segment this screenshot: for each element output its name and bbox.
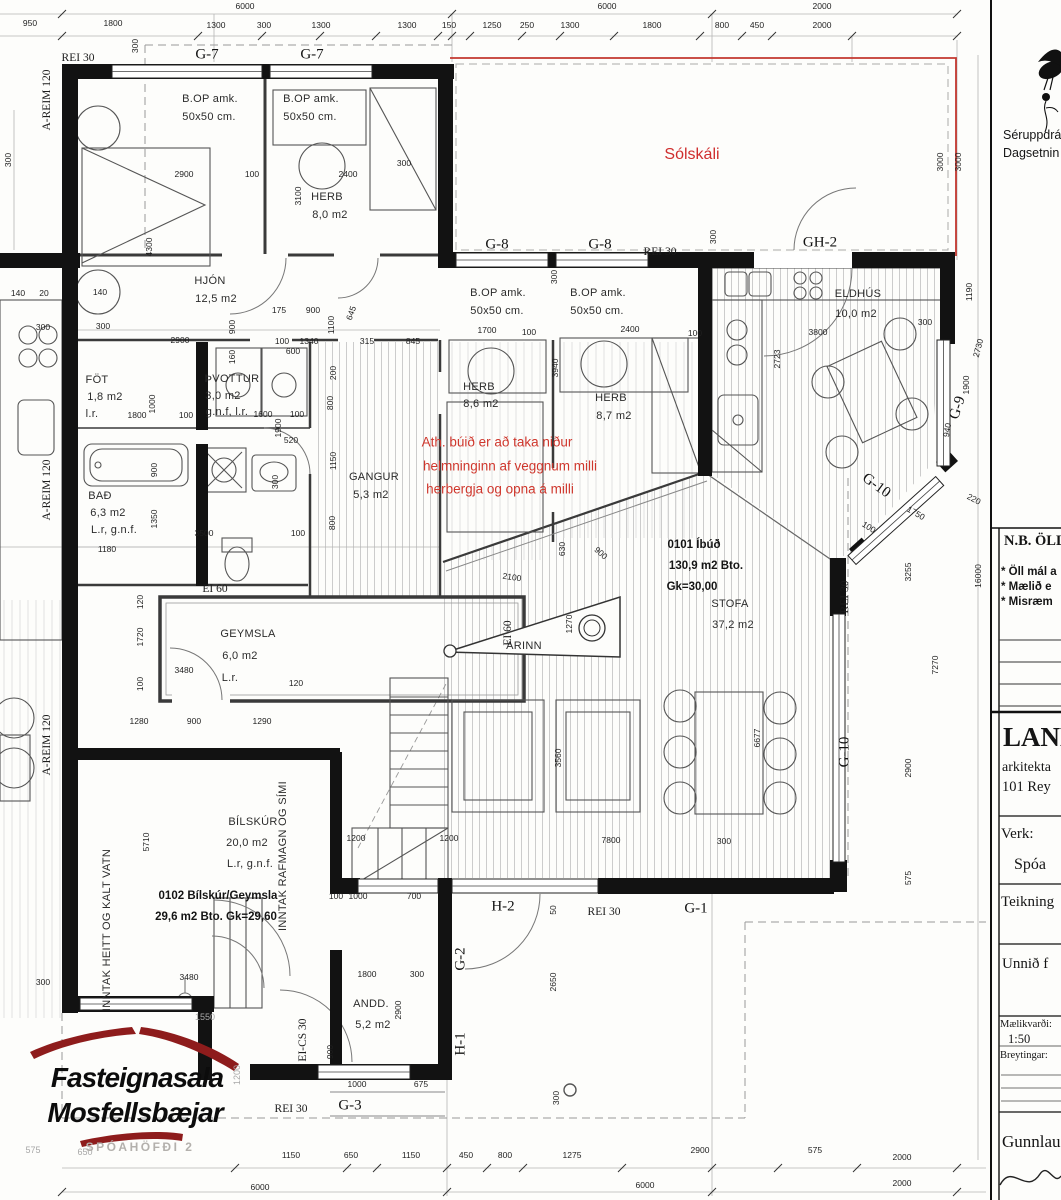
room-label: B.OP amk. xyxy=(182,93,238,105)
dim-label: 6677 xyxy=(752,729,762,748)
dim-label: 1275 xyxy=(563,1150,582,1160)
dim-label: 800 xyxy=(327,516,337,530)
dim-label: 1800 xyxy=(358,969,377,979)
room-label: 5,3 m2 xyxy=(353,489,388,501)
dim-label: 220 xyxy=(965,491,982,506)
annotation-label: herbergja og opna á milli xyxy=(426,482,574,497)
dim-label: 6000 xyxy=(236,1,255,11)
room-label: ÞVOTTUR xyxy=(205,373,260,385)
dim-label: 1000 xyxy=(349,891,368,901)
dim-label: 2000 xyxy=(813,20,832,30)
room-label: HERB xyxy=(463,381,495,393)
grid-tag-label: A-REIM 120 xyxy=(41,69,53,130)
dim-label: 300 xyxy=(36,322,50,332)
dim-label: 1190 xyxy=(964,283,974,301)
grid-tag-label: G-8 xyxy=(588,237,611,254)
room-label: L.r. xyxy=(222,672,239,684)
dim-label: 1300 xyxy=(561,20,580,30)
realtor-logo-address: SPÓAHÖFÐI 2 xyxy=(86,1140,195,1154)
dim-label: 900 xyxy=(187,716,201,726)
dim-label: 1270 xyxy=(564,615,574,634)
grid-tag-label: A-REIM 120 xyxy=(41,459,53,520)
dim-label: 1800 xyxy=(104,18,123,28)
dim-label: 3800 xyxy=(809,327,828,337)
dim-label: 1900 xyxy=(961,376,971,395)
dim-label: 16000 xyxy=(973,564,983,588)
room-label: 3,0 m2 xyxy=(205,390,240,402)
dim-label: 300 xyxy=(96,321,110,331)
room-label: 5,2 m2 xyxy=(355,1019,390,1031)
dim-label: 800 xyxy=(325,396,335,410)
grid-tag-label: EI 60 xyxy=(202,583,227,595)
dim-label: 2400 xyxy=(339,169,358,179)
realtor-logo-line1: Fasteignasala xyxy=(51,1062,223,1094)
room-label: HERB xyxy=(311,191,343,203)
dim-label: 1150 xyxy=(402,1150,420,1160)
room-label: 1,8 m2 xyxy=(87,391,122,403)
dim-label: 800 xyxy=(498,1150,512,1160)
room-label: BÍLSKÚR xyxy=(228,816,277,828)
grid-tag-label: G-10 xyxy=(837,737,854,768)
room-label: 8,0 m2 xyxy=(312,209,347,221)
dim-label: 300 xyxy=(3,153,13,167)
titleblock-nb-item-3: * Misræm xyxy=(1001,596,1053,608)
dim-label: 1300 xyxy=(207,20,226,30)
titleblock-breytingar-label: Breytingar: xyxy=(1000,1050,1048,1061)
floorplan-sheet: 6000600020009501800130030013001300150125… xyxy=(0,0,1061,1200)
grid-tag-label: EI 60 xyxy=(502,620,514,645)
dim-label: 630 xyxy=(557,542,567,556)
room-label: 6,0 m2 xyxy=(222,650,257,662)
grid-tag-label: G-2 xyxy=(453,947,470,970)
room-label: 8,7 m2 xyxy=(596,410,631,422)
dim-label: 2900 xyxy=(175,169,194,179)
dim-label: 3940 xyxy=(550,359,560,378)
dim-label: 3480 xyxy=(175,665,194,675)
dim-label: 300 xyxy=(551,1091,561,1105)
dim-label: 940 xyxy=(941,422,953,438)
titleblock-scale-value: 1:50 xyxy=(1008,1032,1030,1047)
dim-label: 2400 xyxy=(621,324,640,334)
room-label: 37,2 m2 xyxy=(712,619,754,631)
room-label: 50x50 cm. xyxy=(182,111,235,123)
dim-label: 575 xyxy=(903,871,913,885)
room-label: ANDD. xyxy=(353,998,389,1010)
dim-label: 2900 xyxy=(903,759,913,778)
dim-label: 300 xyxy=(270,475,280,489)
dim-label: 675 xyxy=(414,1079,428,1089)
room-label: 50x50 cm. xyxy=(283,111,336,123)
dim-label: 300 xyxy=(549,270,559,284)
dim-label: 300 xyxy=(918,317,932,327)
dim-label: 2000 xyxy=(813,1,832,11)
dim-label: 1150 xyxy=(282,1150,300,1160)
annotation-label: Sólskáli xyxy=(664,146,719,164)
dim-label: 1900 xyxy=(273,419,283,438)
room-label: STOFA xyxy=(711,598,748,610)
dim-label: 1200 xyxy=(347,833,366,843)
grid-tag-label: G-8 xyxy=(485,237,508,254)
grid-tag-label: EI-CS 30 xyxy=(297,1018,309,1061)
dim-label: 100 xyxy=(522,327,536,337)
dim-label: 1700 xyxy=(478,325,497,335)
dim-label: 700 xyxy=(407,891,421,901)
dim-label: 1800 xyxy=(128,410,147,420)
annotation-label: helmninginn af veggnum milli xyxy=(423,459,597,474)
room-label: GEYMSLA xyxy=(220,628,275,640)
room-label: GANGUR xyxy=(349,471,399,483)
dim-label: 950 xyxy=(23,18,37,28)
grid-tag-label: G-3 xyxy=(338,1098,361,1115)
titleblock-firm-name: LAND xyxy=(1003,722,1061,753)
titleblock-note-1: Séruppdrá xyxy=(1003,128,1061,142)
dim-label: 1300 xyxy=(312,20,331,30)
dim-label: 1340 xyxy=(300,336,319,346)
grid-tag-label: A-REIM 120 xyxy=(41,714,53,775)
titleblock-nb-item-1: * Öll mál a xyxy=(1001,566,1057,578)
dim-label: 3560 xyxy=(553,749,563,768)
grid-tag-label: GH-2 xyxy=(803,235,837,252)
dim-label: 6000 xyxy=(251,1182,270,1192)
titleblock-firm-line2: arkitekta xyxy=(1002,760,1051,776)
dim-label: 315 xyxy=(360,336,374,346)
room-label: INNTAK RAFMAGN OG SÍMI xyxy=(277,781,289,931)
dim-label: 450 xyxy=(459,1150,473,1160)
dim-label: 2000 xyxy=(893,1178,912,1188)
dim-label: 300 xyxy=(257,20,271,30)
dim-label: 1280 xyxy=(130,716,149,726)
dim-label: 2650 xyxy=(548,973,558,992)
room-label: 6,3 m2 xyxy=(90,507,125,519)
titleblock-nb-item-2: * Mælið e xyxy=(1001,581,1051,593)
titleblock-verk-label: Verk: xyxy=(1001,826,1034,843)
grid-tag-label: G-10 xyxy=(859,470,894,502)
realtor-logo-line2: Mosfellsbæjar xyxy=(47,1097,222,1129)
dim-label: 140 xyxy=(93,287,107,297)
dim-label: 200 xyxy=(328,366,338,380)
room-label: l.r. xyxy=(86,408,99,420)
dim-label: 2900 xyxy=(171,335,190,345)
dim-label: 1000 xyxy=(348,1079,367,1089)
dim-label: 50 xyxy=(548,905,558,914)
dim-label: 160 xyxy=(227,350,237,364)
dim-label: 2000 xyxy=(893,1152,912,1162)
dim-label: 845 xyxy=(406,336,420,346)
dim-label: 100 xyxy=(329,891,343,901)
dim-label: 575 xyxy=(25,1145,40,1155)
dim-label: 100 xyxy=(179,410,193,420)
dim-label: 3100 xyxy=(293,187,303,206)
room-label: 12,5 m2 xyxy=(195,293,237,305)
room-label: 20,0 m2 xyxy=(226,837,268,849)
dim-label: 575 xyxy=(808,1145,822,1155)
dim-label: 100 xyxy=(860,519,877,535)
dim-label: 1750 xyxy=(905,504,926,522)
dim-label: 250 xyxy=(520,20,534,30)
dim-label: 800 xyxy=(715,20,729,30)
dim-label: 6000 xyxy=(636,1180,655,1190)
dim-label: 1300 xyxy=(398,20,417,30)
room-label: 0101 Íbúð xyxy=(667,539,720,551)
dim-label: 645 xyxy=(344,305,358,322)
dim-label: 300 xyxy=(130,39,140,53)
room-label: L.r, g.n.f. xyxy=(227,858,273,870)
room-label: 50x50 cm. xyxy=(470,305,523,317)
dim-label: 120 xyxy=(135,595,145,609)
room-label: g.n.f, l.r. xyxy=(206,406,248,418)
dim-label: 7800 xyxy=(602,835,621,845)
dim-label: 3000 xyxy=(935,153,945,172)
titleblock-note-2: Dagsetnin xyxy=(1003,146,1059,160)
dim-label: 1550 xyxy=(195,1012,215,1022)
dim-label: 3000 xyxy=(953,153,963,172)
titleblock-scale-label: Mælikvarði: xyxy=(1000,1019,1052,1030)
dim-label: 1150 xyxy=(328,452,338,470)
dim-label: 1800 xyxy=(643,20,662,30)
dim-label: 2900 xyxy=(393,1001,403,1020)
room-label: Gk=30,00 xyxy=(667,581,718,593)
titleblock-teikning-label: Teikning xyxy=(1001,894,1054,911)
titleblock-verk-value: Spóa xyxy=(1014,856,1046,874)
dim-label: 1350 xyxy=(149,510,159,529)
dim-label: 100 xyxy=(135,677,145,691)
titleblock-firm-line3: 101 Rey xyxy=(1002,779,1051,796)
dim-label: 900 xyxy=(325,1045,335,1059)
dim-label: 1200 xyxy=(232,1065,242,1085)
dim-label: 650 xyxy=(344,1150,358,1160)
titleblock-unnid-label: Unnið f xyxy=(1002,956,1048,973)
dim-label: 3255 xyxy=(903,563,913,582)
room-label: FÖT xyxy=(86,374,109,386)
dim-label: 300 xyxy=(717,836,731,846)
dim-label: 3480 xyxy=(180,972,199,982)
room-label: B.OP amk. xyxy=(283,93,339,105)
dim-label: 300 xyxy=(397,158,411,168)
dim-label: 300 xyxy=(708,230,718,244)
dim-label: 300 xyxy=(410,969,424,979)
room-label: ELDHÚS xyxy=(835,288,881,300)
room-label: 0102 Bílskúr/Geymsla xyxy=(159,890,278,902)
dim-label: 2723 xyxy=(772,350,782,369)
grid-tag-label: REI 30 xyxy=(644,246,677,258)
dim-label: 6000 xyxy=(598,1,617,11)
dim-label: 4300 xyxy=(144,238,154,257)
dim-label: 150 xyxy=(442,20,456,30)
dim-label: 7270 xyxy=(930,656,940,675)
dim-label: 120 xyxy=(289,678,303,688)
grid-tag-label: REI 30 xyxy=(588,906,621,918)
room-label: 130,9 m2 Bto. xyxy=(669,560,743,572)
plan-labels: 6000600020009501800130030013001300150125… xyxy=(0,0,1061,1200)
room-label: L.r, g.n.f. xyxy=(91,524,137,536)
room-label: 29,6 m2 Bto. Gk=29,60 xyxy=(155,911,277,923)
dim-label: 900 xyxy=(149,463,159,477)
grid-tag-label: H-2 xyxy=(491,899,514,916)
grid-tag-label: REI 30 xyxy=(62,52,95,64)
dim-label: 100 xyxy=(275,336,289,346)
room-label: INNTAK HEITT OG KALT VATN xyxy=(101,849,113,1011)
room-label: 8,6 m2 xyxy=(463,398,498,410)
dim-label: 1100 xyxy=(326,316,336,334)
dim-label: 1180 xyxy=(98,544,116,554)
room-label: B.OP amk. xyxy=(470,287,526,299)
annotation-label: Ath. búið er að taka niður xyxy=(422,435,573,450)
dim-label: 1000 xyxy=(147,395,157,414)
grid-tag-label: REI 30 xyxy=(839,581,851,614)
dim-label: 900 xyxy=(227,320,237,334)
dim-label: 2900 xyxy=(691,1145,710,1155)
dim-label: 520 xyxy=(284,435,298,445)
titleblock-signature: Gunnlaugu xyxy=(1002,1132,1061,1152)
grid-tag-label: REI 30 xyxy=(275,1103,308,1115)
grid-tag-label: G-7 xyxy=(195,47,218,64)
dim-label: 2100 xyxy=(502,571,522,584)
dim-label: 1200 xyxy=(440,833,459,843)
grid-tag-label: G-7 xyxy=(300,47,323,64)
dim-label: 1720 xyxy=(135,628,145,647)
dim-label: 140 xyxy=(11,288,25,298)
dim-label: 1600 xyxy=(254,409,273,419)
room-label: 10,0 m2 xyxy=(835,308,877,320)
dim-label: 900 xyxy=(592,545,609,562)
dim-label: 100 xyxy=(290,409,304,419)
dim-label: 20 xyxy=(39,288,48,298)
dim-label: 100 xyxy=(688,328,702,338)
titleblock-nb-heading: N.B. ÖLL xyxy=(1004,533,1061,550)
dim-label: 5710 xyxy=(141,833,151,852)
grid-tag-label: G-1 xyxy=(684,901,707,918)
dim-label: 300 xyxy=(36,977,50,987)
dim-label: 1290 xyxy=(253,716,272,726)
grid-tag-label: H-1 xyxy=(453,1032,470,1055)
dim-label: 900 xyxy=(306,305,320,315)
dim-label: 600 xyxy=(286,346,300,356)
room-label: BAÐ xyxy=(88,490,112,502)
room-label: 50x50 cm. xyxy=(570,305,623,317)
room-label: HJÓN xyxy=(194,275,225,287)
dim-label: 100 xyxy=(291,528,305,538)
grid-tag-label: G-9 xyxy=(946,394,969,421)
dim-label: 100 xyxy=(245,169,259,179)
dim-label: 450 xyxy=(750,20,764,30)
dim-label: 175 xyxy=(272,305,286,315)
room-label: HERB xyxy=(595,392,627,404)
dim-label: 3500 xyxy=(195,528,214,538)
dim-label: 1250 xyxy=(483,20,502,30)
room-label: B.OP amk. xyxy=(570,287,626,299)
dim-label: 2730 xyxy=(971,338,986,359)
